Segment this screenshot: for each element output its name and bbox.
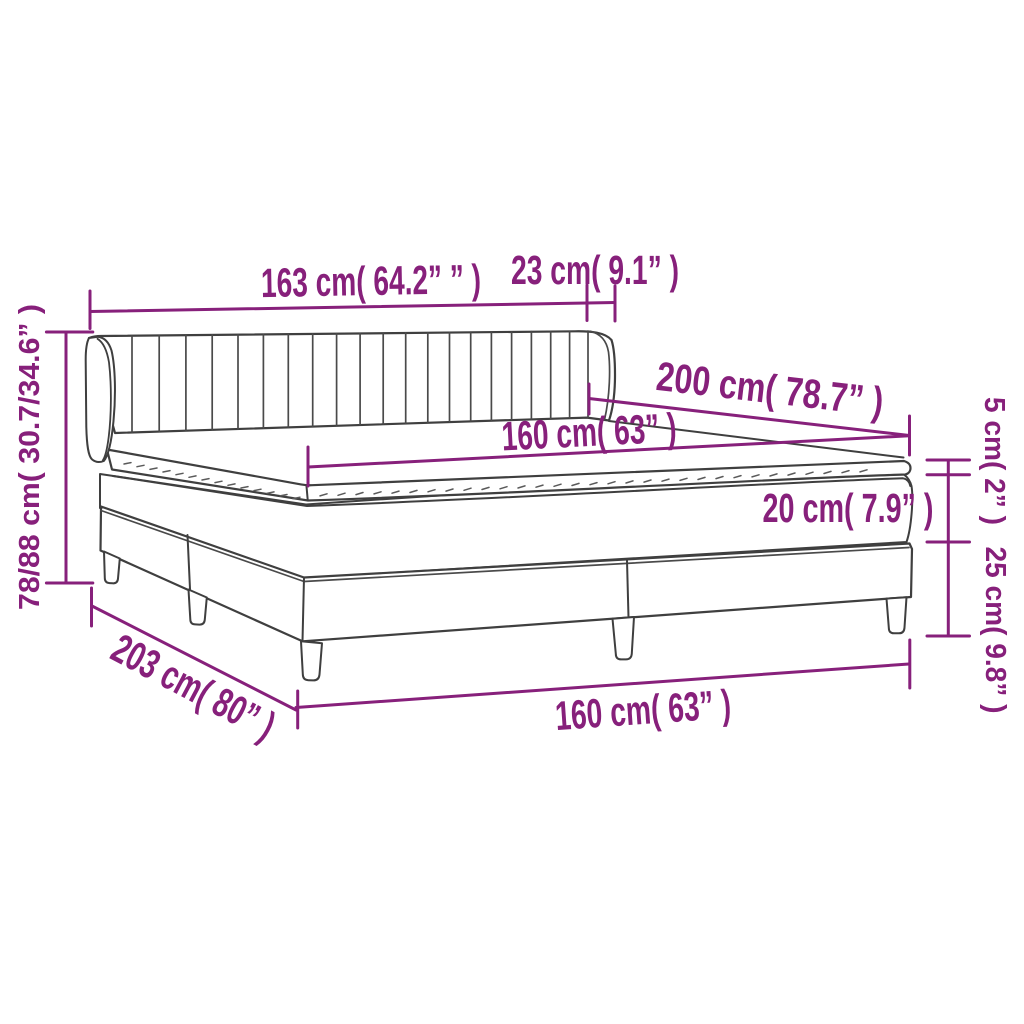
svg-text:23 cm( 9.1” ): 23 cm( 9.1” ) bbox=[511, 247, 679, 293]
svg-text:5 cm( 2” ): 5 cm( 2” ) bbox=[978, 397, 1010, 525]
svg-text:160 cm( 63” ): 160 cm( 63” ) bbox=[500, 404, 677, 459]
svg-text:78/88 cm( 30.7/34.6” ): 78/88 cm( 30.7/34.6” ) bbox=[14, 304, 46, 610]
svg-text:25 cm( 9.8” ): 25 cm( 9.8” ) bbox=[979, 547, 1011, 714]
svg-text:20 cm( 7.9” ): 20 cm( 7.9” ) bbox=[763, 485, 934, 531]
svg-text:163 cm( 64.2” ” ): 163 cm( 64.2” ” ) bbox=[261, 256, 482, 306]
